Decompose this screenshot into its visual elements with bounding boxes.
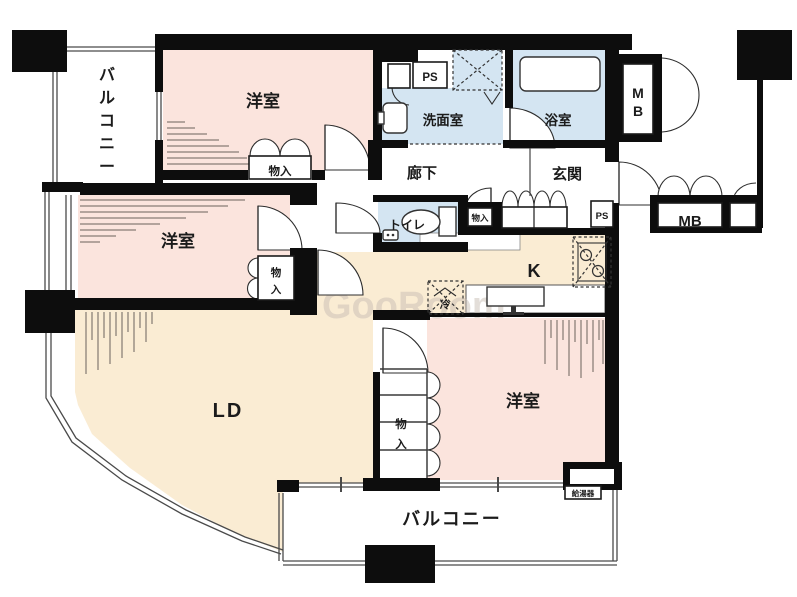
bathtub	[520, 57, 600, 91]
label-entrance: 玄関	[552, 165, 582, 183]
svg-text:物: 物	[395, 417, 407, 431]
pillar-bottom	[365, 545, 435, 583]
label-balcony-bottom: バルコニー	[402, 509, 502, 529]
door-meterbox-top-lower	[662, 95, 699, 132]
svg-text:ニ: ニ	[99, 136, 115, 153]
door-meterbox-top-upper	[662, 58, 699, 95]
label-western-top: 洋室	[246, 91, 280, 111]
door-western-mid	[258, 206, 302, 250]
label-western-bottom: 洋室	[506, 391, 540, 411]
label-ps-top: PS	[422, 72, 438, 84]
label-toilet: トイレ	[389, 218, 425, 232]
label-western-mid: 洋室	[161, 231, 195, 251]
svg-text:バ: バ	[99, 66, 115, 84]
svg-text:ー: ー	[99, 159, 115, 176]
label-water-heater: 給湯器	[572, 488, 595, 498]
washbasin	[383, 103, 407, 133]
label-refrigerator: 冷	[440, 298, 451, 311]
pillar-top-right	[737, 30, 792, 80]
ps-top-small	[388, 64, 410, 88]
label-kitchen: K	[528, 261, 541, 281]
label-hallway: 廊下	[407, 164, 437, 182]
pillar-top-left	[12, 30, 67, 72]
label-living-dining: LD	[213, 400, 244, 422]
label-washroom: 洗面室	[423, 112, 464, 128]
pillar-mid-left	[25, 290, 75, 333]
floor-plan: GooRoom	[0, 0, 797, 597]
label-closet-top: 物入	[269, 164, 292, 178]
svg-text:入: 入	[271, 284, 282, 296]
svg-text:入: 入	[395, 438, 407, 451]
door-toilet	[336, 203, 380, 233]
svg-text:物: 物	[271, 266, 282, 279]
svg-text:コ: コ	[99, 113, 115, 130]
label-closet-bottom: 物 入	[395, 417, 407, 451]
heater-niche	[570, 469, 614, 484]
meterbox-right-cell	[730, 203, 756, 227]
label-meterbox-right: MB	[678, 213, 701, 230]
shoe-cabinet-doors	[502, 191, 566, 207]
label-ps-entrance: PS	[596, 211, 609, 222]
svg-text:M: M	[632, 85, 644, 101]
label-balcony-side: バ ル コ ニ ー	[99, 66, 115, 176]
svg-text:B: B	[633, 103, 643, 119]
door-western-bottom	[383, 328, 428, 373]
label-bathroom: 浴室	[545, 112, 573, 128]
svg-text:ル: ル	[99, 90, 115, 107]
meterbox-right-doors	[658, 176, 722, 197]
washbasin-tap	[378, 112, 384, 124]
label-closet-hall: 物入	[471, 213, 489, 223]
